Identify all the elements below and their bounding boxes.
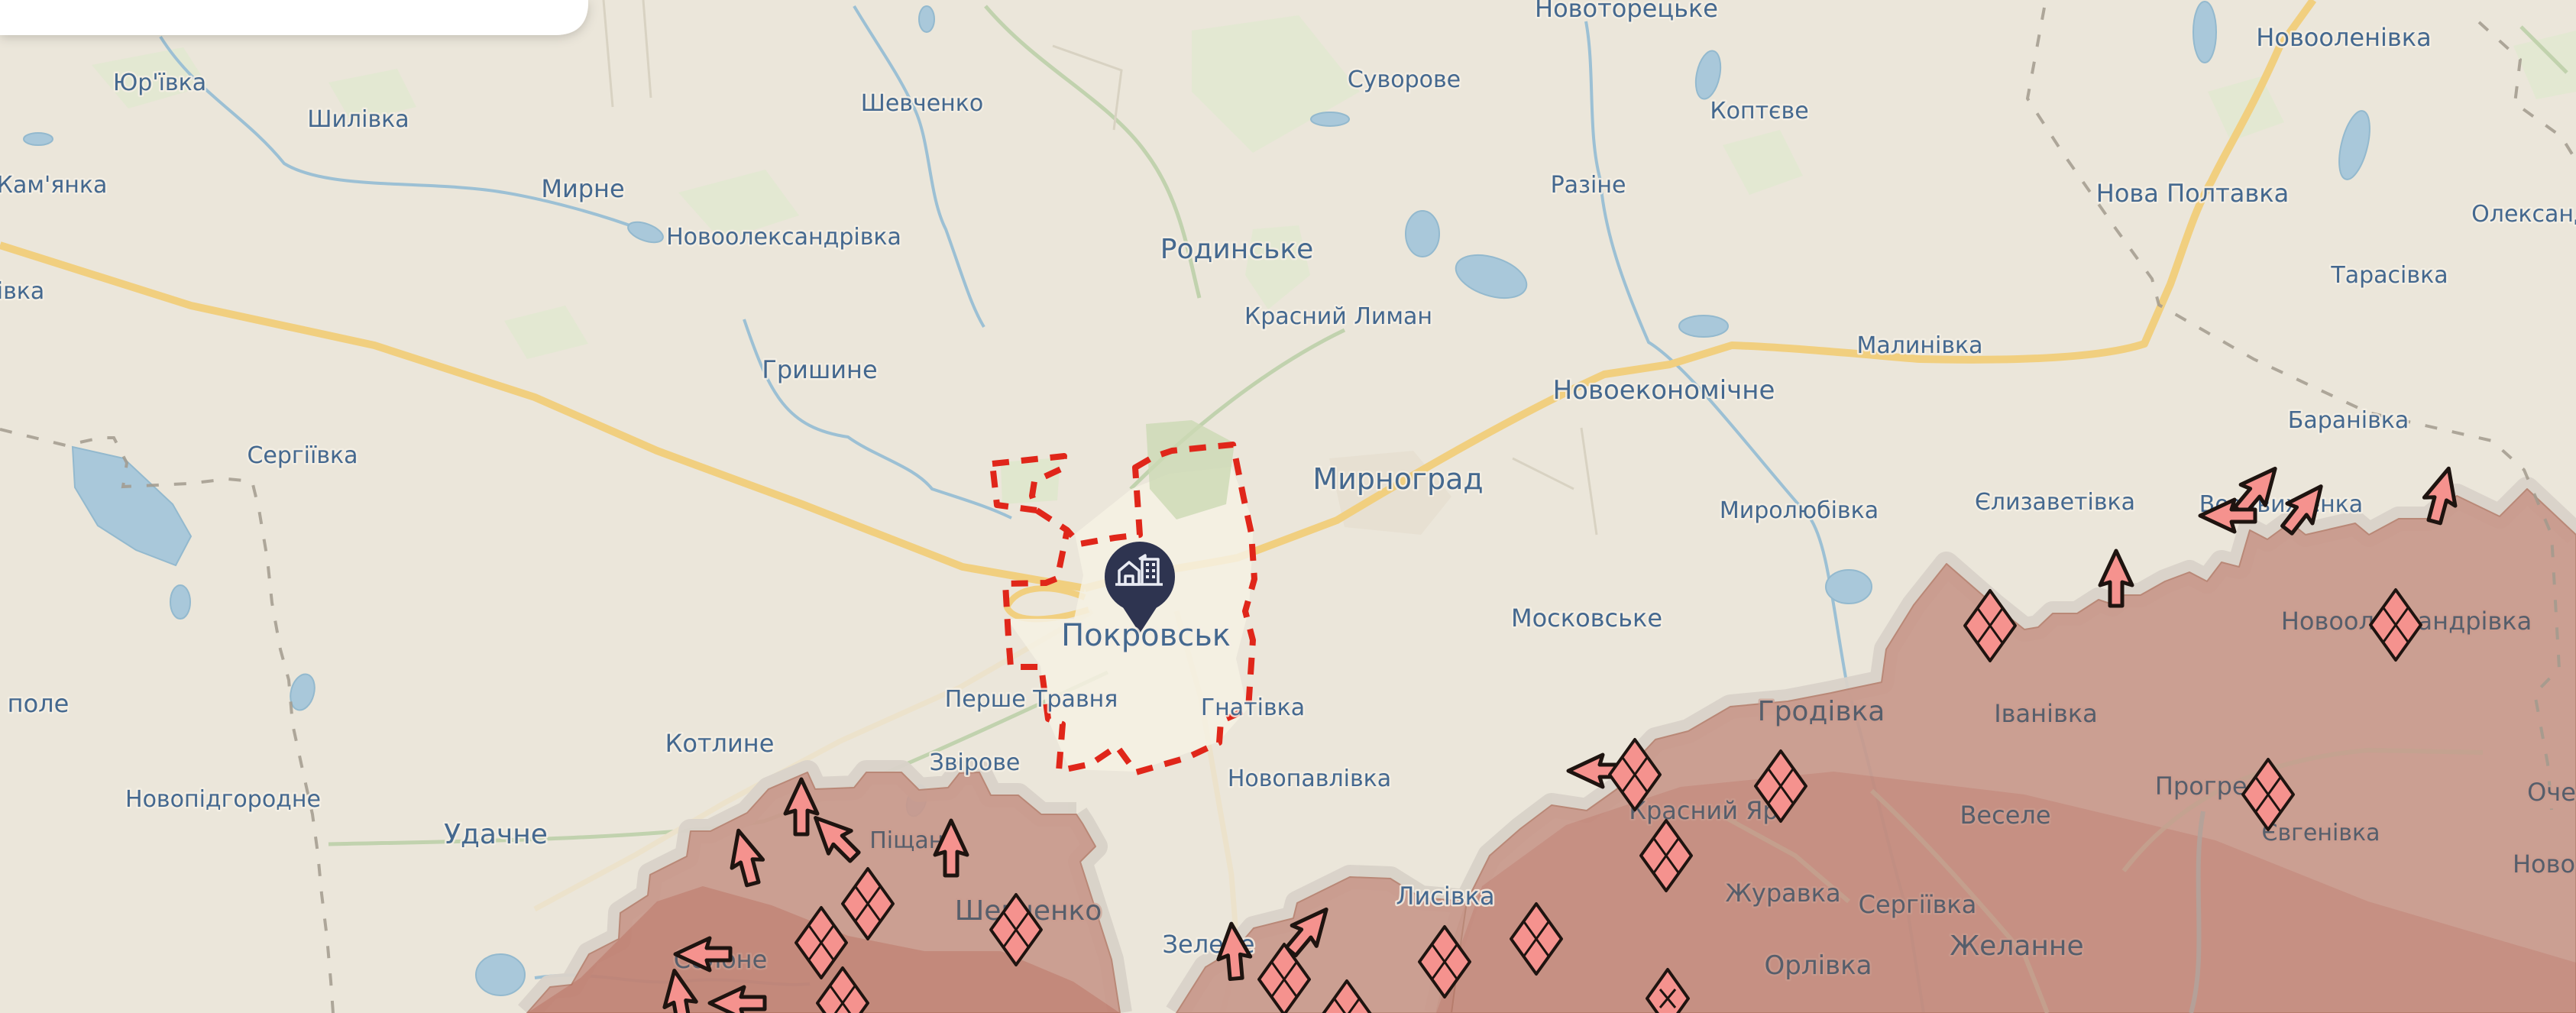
- place-label: Євгенівка: [2262, 820, 2380, 846]
- place-label: Красний Яр: [1629, 796, 1778, 825]
- map-canvas[interactable]: Юр'ївкаШилівкаКам'янкаівкаМирнеНовоолекс…: [0, 0, 2576, 1013]
- place-label: Новоекономічне: [1553, 375, 1775, 406]
- place-label: Мирноград: [1312, 462, 1483, 496]
- place-label: Звірове: [930, 749, 1021, 776]
- place-label: Московське: [1511, 604, 1662, 633]
- place-label: Суворове: [1348, 66, 1461, 93]
- place-label: Гнатівка: [1201, 694, 1305, 721]
- place-label: Коптєве: [1710, 98, 1808, 125]
- place-label: Ново: [2513, 850, 2575, 879]
- place-label: Перше Травня: [945, 686, 1118, 713]
- place-label: Гришине: [762, 355, 877, 384]
- place-label: Новооленівка: [2256, 23, 2431, 52]
- place-label: Лисівка: [1396, 882, 1494, 911]
- place-label: Кам'янка: [0, 172, 107, 199]
- place-label: Орлівка: [1765, 950, 1872, 981]
- place-label: Родинське: [1160, 234, 1313, 265]
- place-label: поле: [8, 689, 70, 718]
- place-label: Іванівка: [1994, 699, 2098, 728]
- place-label: Юр'ївка: [113, 70, 206, 96]
- place-label: Шевченко: [861, 90, 984, 117]
- place-label: Разіне: [1551, 172, 1626, 199]
- place-label: Веселе: [1960, 801, 2050, 830]
- place-label: Баранівка: [2288, 407, 2409, 434]
- place-label: Новопавлівка: [1228, 765, 1391, 792]
- place-label: Тарасівка: [2330, 262, 2448, 289]
- place-label: Красний Лиман: [1244, 303, 1432, 330]
- place-label: Оче: [2527, 778, 2576, 807]
- place-label: Желанне: [1950, 930, 2083, 962]
- place-label: Сергіївка: [1859, 890, 1977, 919]
- place-label: Гродівка: [1758, 696, 1885, 727]
- place-label: Шилівка: [307, 106, 409, 133]
- overlay-panel: [0, 0, 588, 35]
- place-label: Миролюбівка: [1720, 497, 1879, 524]
- place-label: Удачне: [444, 819, 548, 850]
- pin-city-label: Покровськ: [1061, 618, 1231, 653]
- place-label: Журавка: [1725, 879, 1840, 908]
- place-label: Малинівка: [1856, 332, 1982, 359]
- place-label: Нова Полтавка: [2096, 179, 2289, 208]
- place-label: івка: [0, 278, 44, 305]
- place-label: Новоолександрівка: [666, 224, 901, 251]
- place-label: Новоторецьке: [1535, 0, 1718, 23]
- place-label: Котлине: [665, 729, 775, 758]
- place-label: Сергіївка: [247, 442, 358, 469]
- place-label: Єлизаветівка: [1975, 489, 2135, 516]
- place-label: Мирне: [541, 174, 624, 203]
- place-label: Новопідгородне: [125, 786, 321, 813]
- place-label: Олександр: [2471, 201, 2576, 228]
- map-stage: Юр'ївкаШилівкаКам'янкаівкаМирнеНовоолекс…: [0, 0, 2576, 1013]
